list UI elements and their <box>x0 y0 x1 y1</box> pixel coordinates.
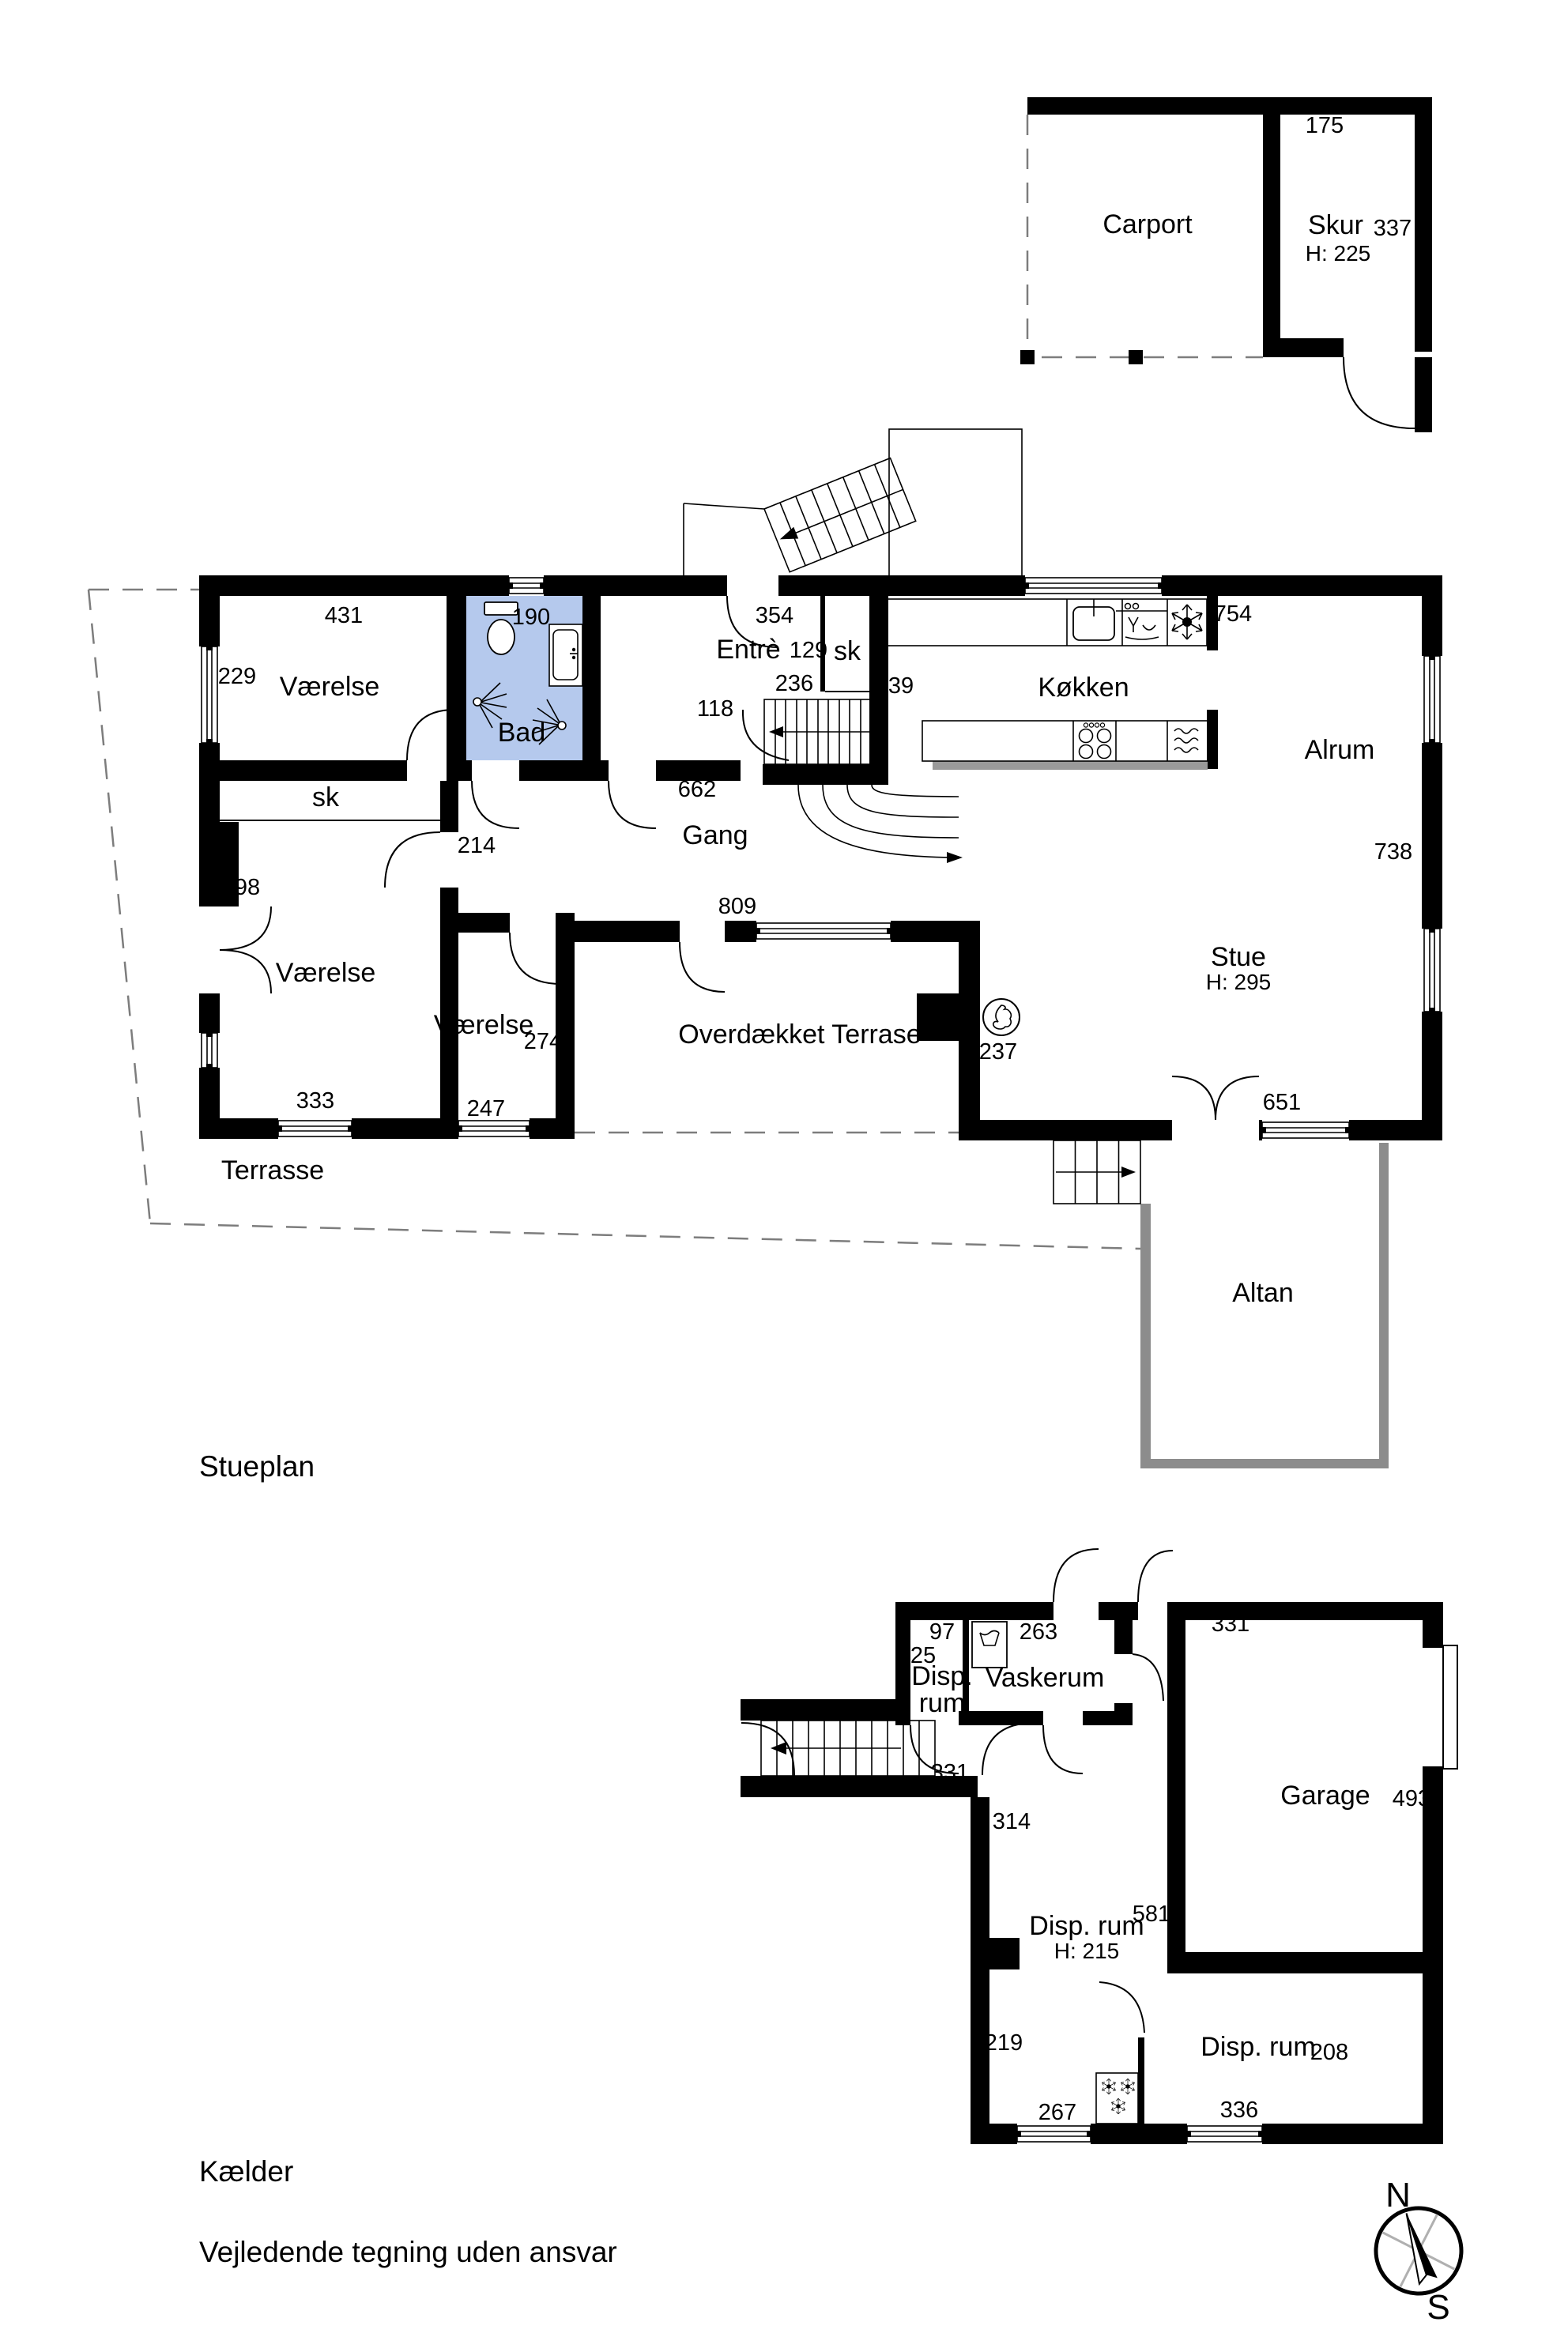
stueplan-labels: 431 Værelse 229 Bad 190 Entrè 354 129 sk… <box>199 601 1412 1483</box>
dim-431: 431 <box>325 603 363 628</box>
vaskerum-exterior-door-arc <box>1053 1549 1099 1602</box>
window <box>202 1033 217 1068</box>
disp-nw-label-line1: Disp. <box>911 1661 972 1691</box>
gang-label: Gang <box>682 820 748 850</box>
stueplan-title: Stueplan <box>199 1450 315 1483</box>
stair-direction-arrow <box>771 1742 786 1755</box>
dim-118: 118 <box>697 696 733 722</box>
disp-mid-label: Disp. rum <box>1029 1911 1144 1941</box>
stue-double-door-arc <box>1216 1076 1259 1120</box>
disp-nw-label-line2: rum <box>919 1688 966 1718</box>
terrace-door-arc <box>680 942 725 992</box>
kitchen-counter <box>879 599 1207 646</box>
vaskerum-label: Vaskerum <box>986 1663 1105 1693</box>
kaelder-stairs <box>761 1721 935 1776</box>
dim-314: 314 <box>993 1809 1031 1834</box>
dim-274: 274 <box>524 1029 562 1054</box>
window <box>458 1121 530 1136</box>
dim-237: 237 <box>979 1039 1017 1065</box>
vaerelse-nw-label: Værelse <box>280 672 380 702</box>
window <box>1187 2126 1262 2142</box>
dim-498: 498 <box>222 875 260 900</box>
altan <box>1053 1140 1389 1468</box>
dim-267: 267 <box>1038 2100 1076 2125</box>
compass-north-label: N <box>1385 2176 1411 2214</box>
vaerelse-s-door-arc <box>510 933 561 984</box>
stair-direction-arrow <box>769 726 783 737</box>
stue-double-door-arc <box>1172 1076 1216 1120</box>
dim-239: 239 <box>876 673 914 699</box>
vaskerum-passage-door-arc <box>1133 1654 1163 1701</box>
floorplan-page: Carport 175 Skur 337 H: 225 <box>0 0 1568 2352</box>
overdaekket-terrasse-label: Overdækket Terrase <box>678 1020 921 1050</box>
bad-door-arc <box>472 781 519 828</box>
stair-direction-arrow <box>1121 1167 1136 1178</box>
fridge-snowflake-icon <box>1172 605 1202 639</box>
oven-icon <box>1174 729 1198 752</box>
dim-214: 214 <box>458 833 496 858</box>
sk-west-label: sk <box>312 782 340 812</box>
window <box>1025 578 1162 594</box>
carport-post <box>1020 350 1035 364</box>
window <box>1017 2126 1091 2142</box>
alrum-label: Alrum <box>1305 735 1375 765</box>
altan-steps <box>1053 1140 1140 1204</box>
skur-door-arc <box>1344 357 1415 428</box>
kaelder-title: Kælder <box>199 2155 293 2188</box>
skur-label: Skur <box>1308 210 1363 240</box>
freezer-icons <box>1096 2073 1138 2124</box>
sink-icon <box>549 624 582 686</box>
dishwasher-icon <box>1116 604 1167 640</box>
dim-754: 754 <box>1214 601 1252 627</box>
passage-exterior-door-arc <box>1138 1551 1173 1602</box>
koekken-label: Køkken <box>1038 673 1129 703</box>
dim-651: 651 <box>1263 1090 1301 1115</box>
entrance-outdoor-stair <box>684 429 1022 578</box>
french-door-arc <box>220 906 271 950</box>
french-door-arc <box>220 950 271 993</box>
carport-skur: Carport 175 Skur 337 H: 225 <box>1020 97 1432 432</box>
floorplan-drawing: Carport 175 Skur 337 H: 225 <box>0 0 1568 2352</box>
dim-336: 336 <box>1220 2098 1258 2123</box>
dim-219: 219 <box>985 2030 1023 2056</box>
stue-label: Stue <box>1211 942 1266 972</box>
dim-662: 662 <box>678 777 716 802</box>
window <box>1424 656 1440 743</box>
dim-809: 809 <box>718 894 756 919</box>
disp-se-label: Disp. rum <box>1200 2032 1315 2062</box>
terrasse-label: Terrasse <box>221 1155 324 1185</box>
dim-333: 333 <box>296 1088 334 1114</box>
window <box>1262 1122 1349 1138</box>
dim-493: 493 <box>1393 1786 1430 1811</box>
vaskerum-door-arc <box>1043 1725 1083 1773</box>
dim-129: 129 <box>790 638 827 663</box>
dim-331-hall: 331 <box>931 1760 969 1785</box>
bad-label: Bad <box>498 718 546 748</box>
disclaimer: Vejledende tegning uden ansvar <box>199 2236 617 2268</box>
dim-263: 263 <box>1020 1619 1057 1645</box>
disp-mid-height-label: H: 215 <box>1054 1939 1120 1963</box>
vaerelse-sw-label: Værelse <box>276 958 376 988</box>
dim-190: 190 <box>512 605 550 630</box>
dim-208: 208 <box>1310 2040 1348 2065</box>
window <box>756 923 891 939</box>
entre-gang-door-arc <box>609 781 656 828</box>
dim-331-garage: 331 <box>1212 1611 1249 1637</box>
compass-south-label: S <box>1427 2288 1449 2327</box>
curved-stairs-to-stue <box>798 785 963 863</box>
window <box>509 578 544 594</box>
altan-label: Altan <box>1232 1278 1294 1308</box>
dim-97: 97 <box>929 1619 955 1645</box>
stair-direction-arrow <box>778 527 798 545</box>
fireplace-icon <box>983 999 1020 1035</box>
internal-stairs <box>764 699 872 764</box>
dim-354: 354 <box>756 603 793 628</box>
carport-label: Carport <box>1102 209 1193 239</box>
skur-area: 337 <box>1374 216 1412 241</box>
vaerelse-sw-door-arc <box>385 832 440 888</box>
garage-door <box>1443 1645 1457 1769</box>
window <box>202 646 217 743</box>
kitchen-island <box>922 721 1208 770</box>
stue-height-label: H: 295 <box>1206 970 1272 994</box>
carport-post <box>1129 350 1143 364</box>
window <box>1424 929 1440 1012</box>
kitchen-sink-icon <box>1073 599 1114 640</box>
skur-height: H: 225 <box>1306 241 1371 266</box>
dim-738: 738 <box>1374 839 1412 865</box>
entre-label: Entrè <box>716 635 780 665</box>
compass-icon: N S <box>1365 2176 1472 2327</box>
vaerelse-s-label: Værelse <box>434 1010 534 1040</box>
window <box>278 1121 352 1136</box>
sk-entre-label: sk <box>834 636 861 666</box>
dim-236: 236 <box>775 671 813 696</box>
hob-icon <box>1080 723 1111 759</box>
dim-175: 175 <box>1306 113 1344 138</box>
floor-strip <box>933 761 1208 770</box>
hall-disp-door-arc <box>982 1723 1035 1775</box>
dim-247: 247 <box>467 1096 505 1121</box>
dim-229: 229 <box>218 664 256 689</box>
washing-machine-icon <box>972 1622 1007 1668</box>
disp-se-door-arc <box>1099 1982 1144 2033</box>
stair-direction-arrow <box>947 852 963 863</box>
garage-label: Garage <box>1280 1781 1370 1811</box>
